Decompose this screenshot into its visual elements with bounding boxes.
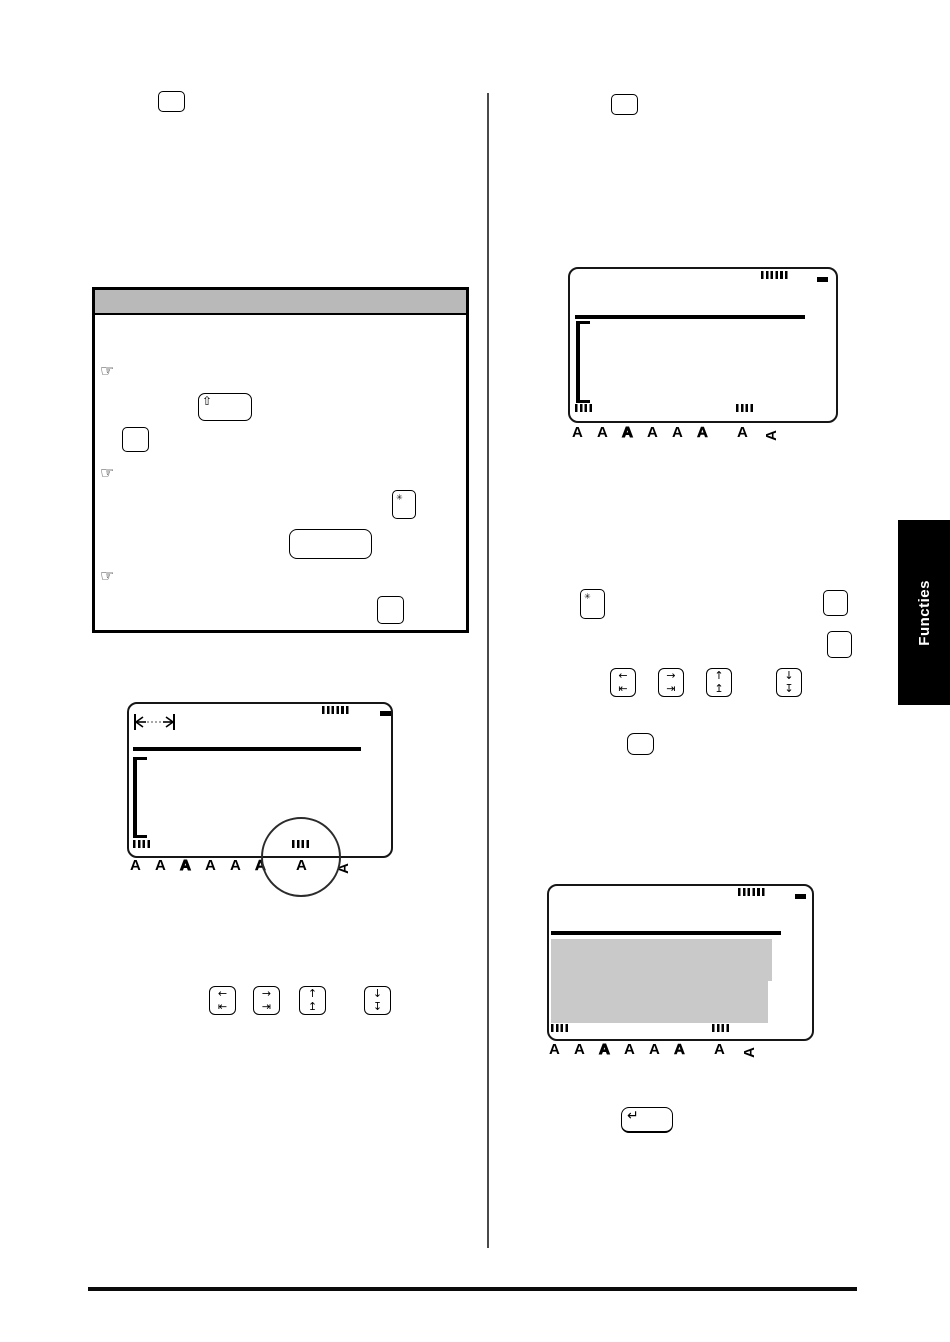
style-indicator-letter: A [622, 424, 633, 441]
style-indicator-letter: A [672, 424, 683, 441]
arrow-up-key: ↑ ↥ [706, 668, 732, 697]
arrow-right-icon: → [666, 670, 675, 683]
arrow-left-key: ← ⇤ [209, 986, 236, 1015]
blank-key [377, 596, 404, 624]
dash-indicator [795, 894, 806, 899]
style-indicator-letter: A [549, 1041, 560, 1058]
arrow-down-key: ↓ ↧ [364, 986, 391, 1015]
style-indicator-letter: A [647, 424, 658, 441]
style-indicator-letter: A [155, 857, 166, 874]
font-style-indicator-row: A A A A A A A A [128, 857, 388, 879]
arrow-down-to-bar-icon: ↧ [373, 1001, 382, 1014]
star-icon: ✳ [396, 493, 403, 502]
wide-blank-key [289, 529, 372, 559]
arrow-down-key: ↓ ↧ [776, 668, 802, 697]
code-key: ✳ [392, 490, 416, 519]
ruler-ticks-icon [738, 888, 765, 896]
blank-key [823, 590, 848, 616]
highlight-circle [261, 817, 341, 897]
arrow-left-icon: ← [218, 988, 227, 1001]
ruler-ticks-icon [761, 271, 788, 279]
ruler-ticks-icon [551, 1024, 568, 1032]
ruler-ticks-icon [322, 706, 349, 714]
blank-key [158, 91, 185, 112]
arrow-left-icon: ← [618, 670, 627, 683]
arrow-left-to-bar-icon: ⇤ [218, 1001, 227, 1014]
return-arrow-icon: ↵ [627, 1108, 639, 1124]
arrow-up-from-bar-icon: ↥ [308, 1001, 317, 1014]
style-indicator-letter: A [230, 857, 241, 874]
italic-style-indicator: A [737, 424, 748, 441]
lcd-screen [568, 267, 838, 423]
arrow-right-to-bar-icon: ⇥ [666, 683, 675, 696]
arrow-down-icon: ↓ [784, 670, 793, 683]
side-tab-label: Functies [916, 580, 933, 646]
ruler-ticks-icon [736, 404, 753, 412]
code-key: ✳ [580, 589, 605, 619]
arrow-up-icon: ↑ [308, 988, 317, 1001]
style-indicator-letter: A [649, 1041, 660, 1058]
arrow-right-key: → ⇥ [253, 986, 280, 1015]
style-indicator-letter: A [205, 857, 216, 874]
column-divider [487, 93, 489, 1248]
text-baseline-bar [133, 747, 361, 751]
style-indicator-letter: A [697, 424, 708, 441]
return-key: ↵ [621, 1107, 673, 1133]
manual-page: Functies ☞ ⇧ ☞ ✳ ☞ A A A A [0, 0, 950, 1342]
font-style-indicator-row: A A A A A A A A [547, 1041, 807, 1063]
style-indicator-letter: A [574, 1041, 585, 1058]
selection-highlight [551, 939, 772, 981]
section-side-tab: Functies [898, 520, 950, 705]
dash-indicator [380, 711, 391, 716]
dash-indicator [817, 277, 828, 282]
shift-arrow-icon: ⇧ [202, 394, 212, 408]
arrow-down-icon: ↓ [373, 988, 382, 1001]
blank-key [627, 733, 654, 755]
arrow-up-icon: ↑ [714, 670, 723, 683]
ruler-ticks-icon [575, 404, 592, 412]
note-box [92, 287, 469, 633]
arrow-left-key: ← ⇤ [610, 668, 636, 697]
star-icon: ✳ [584, 592, 591, 601]
ruler-ticks-icon [712, 1024, 729, 1032]
arrow-right-key: → ⇥ [658, 668, 684, 697]
vertical-print-indicator: A [741, 1047, 758, 1058]
blank-key [122, 427, 149, 452]
arrow-up-key: ↑ ↥ [299, 986, 326, 1015]
vertical-print-indicator: A [763, 430, 780, 441]
pointing-hand-icon: ☞ [100, 465, 114, 481]
blank-key [611, 94, 638, 115]
open-bracket-symbol [133, 757, 147, 838]
blank-key [827, 631, 852, 658]
shift-key: ⇧ [198, 393, 252, 421]
style-indicator-letter: A [624, 1041, 635, 1058]
arrow-left-to-bar-icon: ⇤ [618, 683, 627, 696]
arrow-down-to-bar-icon: ↧ [784, 683, 793, 696]
pointing-hand-icon: ☞ [100, 363, 114, 379]
italic-style-indicator: A [714, 1041, 725, 1058]
arrow-up-from-bar-icon: ↥ [714, 683, 723, 696]
style-indicator-letter: A [597, 424, 608, 441]
arrow-right-icon: → [262, 988, 271, 1001]
style-indicator-letter: A [130, 857, 141, 874]
ruler-ticks-icon [133, 840, 150, 848]
selection-highlight [551, 981, 768, 1023]
text-baseline-bar [551, 931, 781, 935]
style-indicator-letter: A [572, 424, 583, 441]
pointing-hand-icon: ☞ [100, 568, 114, 584]
style-indicator-letter: A [180, 857, 191, 874]
note-box-header [95, 290, 466, 315]
open-bracket-symbol [576, 321, 590, 403]
style-indicator-letter: A [674, 1041, 685, 1058]
style-indicator-letter: A [599, 1041, 610, 1058]
tape-length-icon [133, 712, 177, 732]
arrow-right-to-bar-icon: ⇥ [262, 1001, 271, 1014]
text-baseline-bar [575, 315, 805, 319]
font-style-indicator-row: A A A A A A A A [568, 424, 828, 446]
footer-rule [88, 1287, 857, 1291]
